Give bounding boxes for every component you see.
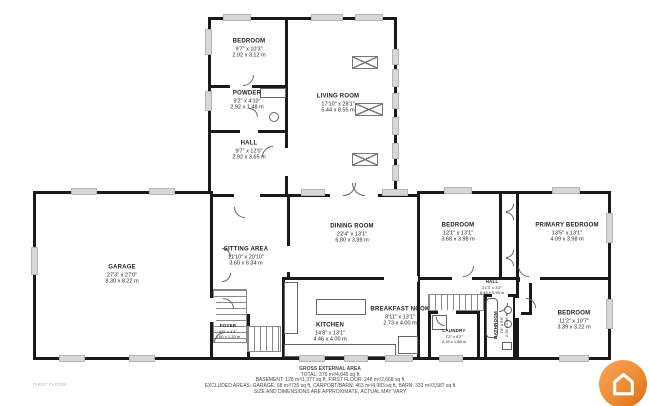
stairs-basement	[428, 294, 484, 311]
label-foyer: FOYER 5'9" x 4'4" 1.80 x 1.33 m	[216, 323, 240, 339]
door-gap-bedroom-mid	[452, 277, 472, 283]
window	[553, 188, 579, 193]
window	[393, 70, 398, 86]
powder-vanity	[260, 88, 286, 98]
window	[383, 190, 407, 195]
kitchen-island	[316, 299, 366, 315]
window	[393, 118, 398, 134]
toilet	[502, 342, 512, 350]
label-breakfast-nook: BREAKFAST NOOK 8'11" x 13'1" 2.73 x 4.00…	[370, 306, 429, 327]
window	[345, 356, 367, 361]
kitchen-counter-left	[284, 282, 298, 334]
crossed-box-symbol	[352, 56, 378, 69]
door-gap-powder	[240, 129, 258, 134]
label-bedroom-mid: BEDROOM 12'1" x 13'1" 3.68 x 3.98 m	[441, 222, 474, 243]
window	[150, 189, 174, 194]
stairs-lower-flight	[247, 326, 281, 352]
label-garage: GARAGE 27'3" x 27'0" 8.30 x 8.22 m	[105, 264, 138, 285]
window	[393, 94, 398, 108]
door-gap-laundry	[438, 310, 456, 315]
label-living-room: LIVING ROOM 17'10" x 28'1" 5.44 x 8.55 m	[317, 93, 360, 114]
window	[130, 356, 154, 361]
opening-french-doors	[330, 191, 378, 198]
house-icon	[610, 371, 637, 398]
window	[312, 15, 342, 20]
label-sitting-area: SITTING AREA 11'10" x 20'10" 3.60 x 6.34…	[224, 246, 269, 267]
door-gap-primary	[520, 277, 540, 283]
opening-hall-sitting	[234, 193, 260, 200]
sliding-door	[386, 356, 412, 361]
window	[356, 15, 382, 20]
fridge	[398, 336, 418, 354]
window	[393, 50, 398, 64]
label-hall-top: HALL 9'7" x 12'0" 2.92 x 3.65 m	[232, 140, 265, 161]
floor-label: FIRST FLOOR	[33, 382, 66, 387]
label-hall-right: HALL 21'3" x 3'2" 6.49 x 0.95 m	[480, 279, 504, 295]
area-summary: GROSS EXTERNAL AREA TOTAL: 376 m²/4,045 …	[160, 367, 500, 395]
door-gap-bedroom-br	[515, 298, 521, 318]
window	[445, 188, 471, 193]
label-laundry: LAUNDRY 7'2" x 6'2" 2.19 x 1.88 m	[442, 328, 466, 344]
window	[72, 189, 96, 194]
opening-hall-living	[284, 148, 290, 176]
window	[440, 356, 462, 361]
label-bedroom-br: BEDROOM 11'2" x 10'7" 3.39 x 3.22 m	[557, 310, 590, 331]
window	[302, 190, 324, 195]
brand-logo	[599, 360, 647, 406]
floorplan-canvas: BEDROOM 9'7" x 10'3" 2.92 x 3.12 m POWDE…	[0, 0, 650, 406]
label-primary-bedroom: PRIMARY BEDROOM 13'5" x 13'1" 4.09 x 3.9…	[535, 222, 598, 243]
window	[560, 356, 588, 361]
label-bedroom-top: BEDROOM 9'7" x 10'3" 2.92 x 3.12 m	[232, 38, 265, 59]
area-disclaimer: SIZE AND DIMENSIONS ARE APPROXIMATE, ACT…	[160, 390, 500, 396]
window	[32, 248, 37, 274]
window	[206, 92, 211, 110]
opening-dining-kitchen	[384, 276, 418, 282]
label-dining-room: DINING ROOM 22'4" x 13'1" 6.80 x 3.98 m	[330, 223, 374, 244]
window	[60, 356, 84, 361]
window	[393, 166, 398, 180]
crossed-box-symbol	[352, 153, 378, 166]
label-powder: POWDER 9'2" x 4'10" 2.92 x 1.48 m	[230, 90, 263, 111]
label-kitchen: KITCHEN 14'8" x 13'1" 4.46 x 4.00 m	[313, 322, 346, 343]
window	[393, 144, 398, 158]
door-gap-bedroom-top	[230, 84, 252, 89]
label-bathroom: BATHROOM 7'8" x 9'6" 2.34 x 2.89 m	[493, 311, 509, 339]
powder-sink	[269, 112, 279, 122]
window	[300, 356, 324, 361]
window	[206, 30, 211, 54]
window	[607, 214, 612, 242]
window	[607, 300, 612, 328]
window	[224, 15, 250, 20]
opening-sitting-dining	[286, 246, 293, 272]
door-gap-garage	[210, 298, 216, 322]
